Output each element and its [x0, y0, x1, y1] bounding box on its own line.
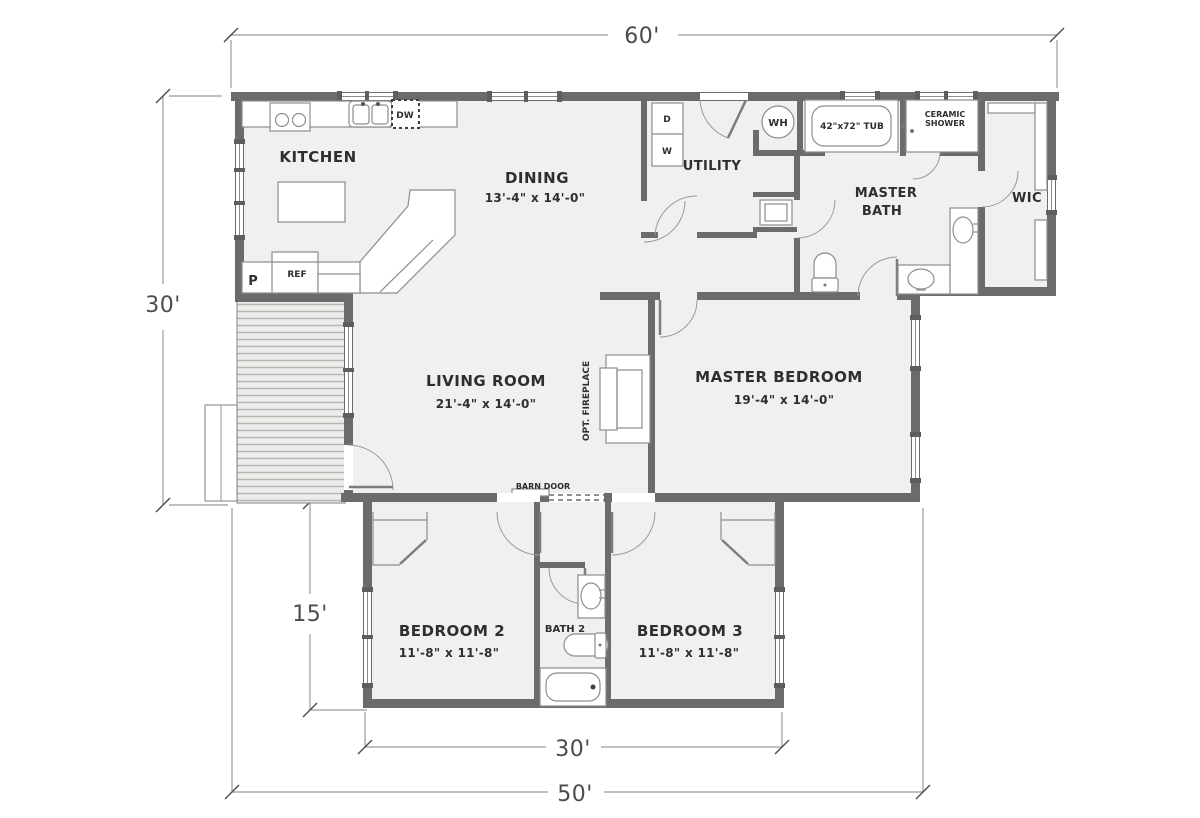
fireplace-label: OPT. FIREPLACE — [582, 361, 592, 441]
kitchen-label: KITCHEN — [279, 148, 356, 166]
dining-size: 13'-4" x 14'-0" — [485, 191, 586, 205]
bedroom2-label: BEDROOM 2 — [399, 622, 505, 640]
shower-label-2: SHOWER — [925, 119, 965, 128]
dryer-label: D — [663, 115, 670, 125]
master-bedroom-label: MASTER BEDROOM — [695, 368, 863, 386]
living-size: 21'-4" x 14'-0" — [436, 397, 537, 411]
bath2-tub — [540, 668, 606, 706]
dim-bottom: 50' — [557, 782, 593, 807]
barn-door-label: BARN DOOR — [516, 482, 570, 491]
water-heater-label: WH — [768, 118, 787, 129]
dim-top: 60' — [624, 24, 660, 49]
shower-label-1: CERAMIC — [925, 110, 966, 119]
bedroom2-size: 11'-8" x 11'-8" — [399, 646, 500, 660]
fridge-label: REF — [287, 270, 306, 280]
master-vanity-1 — [950, 208, 979, 294]
wic-label: WIC — [1012, 191, 1042, 206]
master-bath-label-1: MASTER — [855, 186, 918, 201]
master-vanity-2 — [898, 265, 950, 294]
dim-wing-height: 15' — [292, 602, 328, 627]
bath2-toilet — [564, 633, 608, 658]
kitchen-island — [278, 182, 345, 222]
bedroom3-label: BEDROOM 3 — [637, 622, 743, 640]
living-label: LIVING ROOM — [426, 372, 546, 390]
dim-left: 30' — [145, 293, 181, 318]
deck — [205, 300, 345, 503]
dishwasher-label: DW — [396, 111, 413, 121]
floor-plan-drawing: 60' 30' 15' 30' 50' KITCHEN DINING 13'-4… — [0, 0, 1200, 818]
utility-label: UTILITY — [683, 159, 742, 174]
washer-label: W — [662, 147, 672, 157]
kitchen-sink — [349, 101, 392, 127]
dining-label: DINING — [505, 169, 569, 187]
master-bedroom-size: 19'-4" x 14'-0" — [734, 393, 835, 407]
dim-wing-width: 30' — [555, 737, 591, 762]
floor-plan-page: 60' 30' 15' 30' 50' KITCHEN DINING 13'-4… — [0, 0, 1200, 818]
linen-closet — [760, 200, 792, 225]
bath2-label: BATH 2 — [545, 624, 585, 635]
pantry-label: P — [248, 274, 258, 289]
tub-label: 42"x72" TUB — [820, 122, 884, 132]
master-toilet — [812, 253, 838, 292]
fireplace — [600, 355, 650, 443]
master-bath-label-2: BATH — [862, 204, 902, 219]
bedroom3-size: 11'-8" x 11'-8" — [639, 646, 740, 660]
bath2-vanity — [578, 575, 605, 618]
